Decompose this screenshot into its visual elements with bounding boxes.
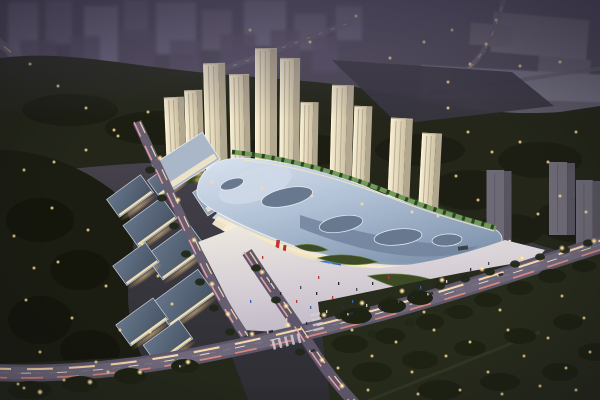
vignette (0, 0, 600, 400)
scene-canvas (0, 0, 600, 400)
architectural-rendering (0, 0, 600, 400)
